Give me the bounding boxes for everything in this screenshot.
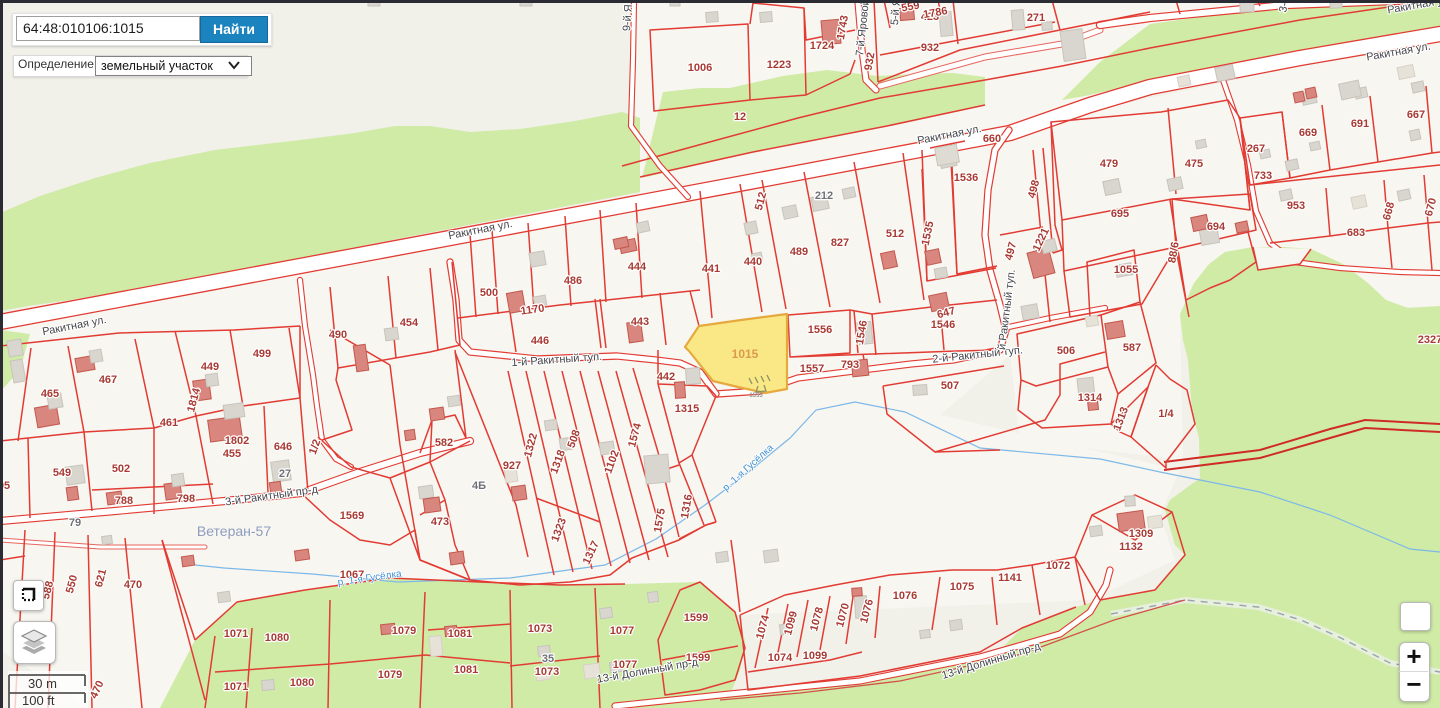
svg-text:490: 490	[329, 329, 347, 341]
svg-text:443: 443	[631, 316, 649, 328]
svg-text:502: 502	[112, 463, 130, 475]
svg-text:35: 35	[542, 653, 554, 665]
svg-text:1074: 1074	[768, 652, 793, 664]
svg-text:1081: 1081	[454, 664, 478, 676]
svg-text:489: 489	[790, 246, 808, 258]
svg-text:473: 473	[431, 516, 449, 528]
svg-text:1080: 1080	[265, 632, 289, 644]
svg-text:694: 694	[1207, 221, 1226, 233]
svg-text:660: 660	[983, 133, 1001, 145]
svg-text:1055: 1055	[1114, 264, 1138, 276]
svg-text:1141: 1141	[998, 572, 1022, 584]
svg-text:507: 507	[941, 380, 959, 392]
svg-text:1223: 1223	[767, 59, 791, 71]
svg-text:Ветеран-57: Ветеран-57	[197, 523, 271, 539]
svg-text:667: 667	[1407, 109, 1425, 121]
svg-text:1071: 1071	[224, 681, 248, 693]
svg-text:470: 470	[124, 579, 142, 591]
svg-text:500: 500	[480, 287, 498, 299]
svg-text:442: 442	[657, 371, 675, 383]
svg-text:1006: 1006	[688, 62, 712, 74]
svg-text:1071: 1071	[224, 628, 248, 640]
svg-text:798: 798	[177, 493, 195, 505]
svg-text:1315: 1315	[675, 403, 699, 415]
svg-text:1073: 1073	[528, 623, 552, 635]
svg-text:1079: 1079	[392, 625, 416, 637]
svg-text:695: 695	[1111, 208, 1129, 220]
svg-text:646: 646	[274, 441, 292, 453]
svg-text:549: 549	[53, 467, 71, 479]
svg-text:512: 512	[886, 228, 904, 240]
svg-text:455: 455	[223, 448, 241, 460]
svg-text:12: 12	[734, 111, 746, 123]
svg-text:267: 267	[1247, 143, 1265, 155]
svg-text:1076: 1076	[893, 590, 917, 602]
svg-text:1569: 1569	[340, 510, 364, 522]
svg-text:1314: 1314	[1078, 392, 1103, 404]
svg-text:691: 691	[1351, 118, 1369, 130]
svg-text:27: 27	[279, 468, 291, 480]
svg-text:4Б: 4Б	[472, 480, 486, 492]
svg-text:1072: 1072	[1046, 560, 1070, 572]
svg-text:475: 475	[1185, 158, 1203, 170]
svg-text:461: 461	[160, 417, 178, 429]
svg-text:932: 932	[921, 42, 939, 54]
svg-text:1557: 1557	[800, 363, 824, 375]
svg-text:587: 587	[1123, 342, 1141, 354]
svg-text:1309: 1309	[1129, 528, 1153, 540]
svg-text:1555: 1555	[749, 393, 763, 399]
svg-text:465: 465	[41, 388, 59, 400]
svg-text:1546: 1546	[931, 319, 955, 331]
svg-text:454: 454	[400, 317, 419, 329]
svg-text:669: 669	[1299, 127, 1317, 139]
svg-text:467: 467	[99, 374, 117, 386]
svg-text:733: 733	[1254, 170, 1272, 182]
svg-text:1075: 1075	[950, 581, 974, 593]
svg-text:9-й Я: 9-й Я	[621, 4, 635, 32]
svg-text:1/4: 1/4	[1158, 408, 1174, 420]
svg-text:582: 582	[435, 437, 453, 449]
svg-text:683: 683	[1347, 227, 1365, 239]
svg-text:79: 79	[69, 517, 81, 529]
svg-text:440: 440	[744, 256, 762, 268]
svg-text:449: 449	[201, 361, 219, 373]
svg-text:506: 506	[1057, 345, 1075, 357]
svg-text:793: 793	[841, 359, 859, 371]
svg-text:1802: 1802	[225, 435, 249, 447]
svg-text:1081: 1081	[448, 628, 472, 640]
svg-text:444: 444	[628, 261, 647, 273]
svg-text:927: 927	[503, 460, 521, 472]
svg-text:1073: 1073	[535, 666, 559, 678]
svg-text:1077: 1077	[610, 625, 634, 637]
svg-text:1099: 1099	[803, 650, 827, 662]
svg-text:1079: 1079	[378, 669, 402, 681]
svg-text:1556: 1556	[808, 324, 832, 336]
svg-text:446: 446	[531, 335, 549, 347]
svg-text:1536: 1536	[954, 172, 978, 184]
svg-text:2327: 2327	[1418, 334, 1440, 346]
svg-text:788: 788	[115, 495, 133, 507]
svg-text:441: 441	[702, 263, 720, 275]
svg-text:479: 479	[1100, 158, 1118, 170]
svg-text:1724: 1724	[810, 40, 835, 52]
svg-text:212: 212	[815, 190, 833, 202]
svg-text:271: 271	[1027, 12, 1045, 24]
svg-text:1015: 1015	[732, 347, 759, 361]
svg-text:1080: 1080	[290, 677, 314, 689]
svg-text:827: 827	[831, 237, 849, 249]
svg-text:953: 953	[1287, 200, 1305, 212]
svg-text:5-й Я: 5-й Я	[889, 0, 903, 26]
svg-text:499: 499	[253, 348, 271, 360]
svg-text:486: 486	[564, 275, 582, 287]
svg-text:1599: 1599	[684, 612, 708, 624]
svg-text:1132: 1132	[1119, 541, 1143, 553]
